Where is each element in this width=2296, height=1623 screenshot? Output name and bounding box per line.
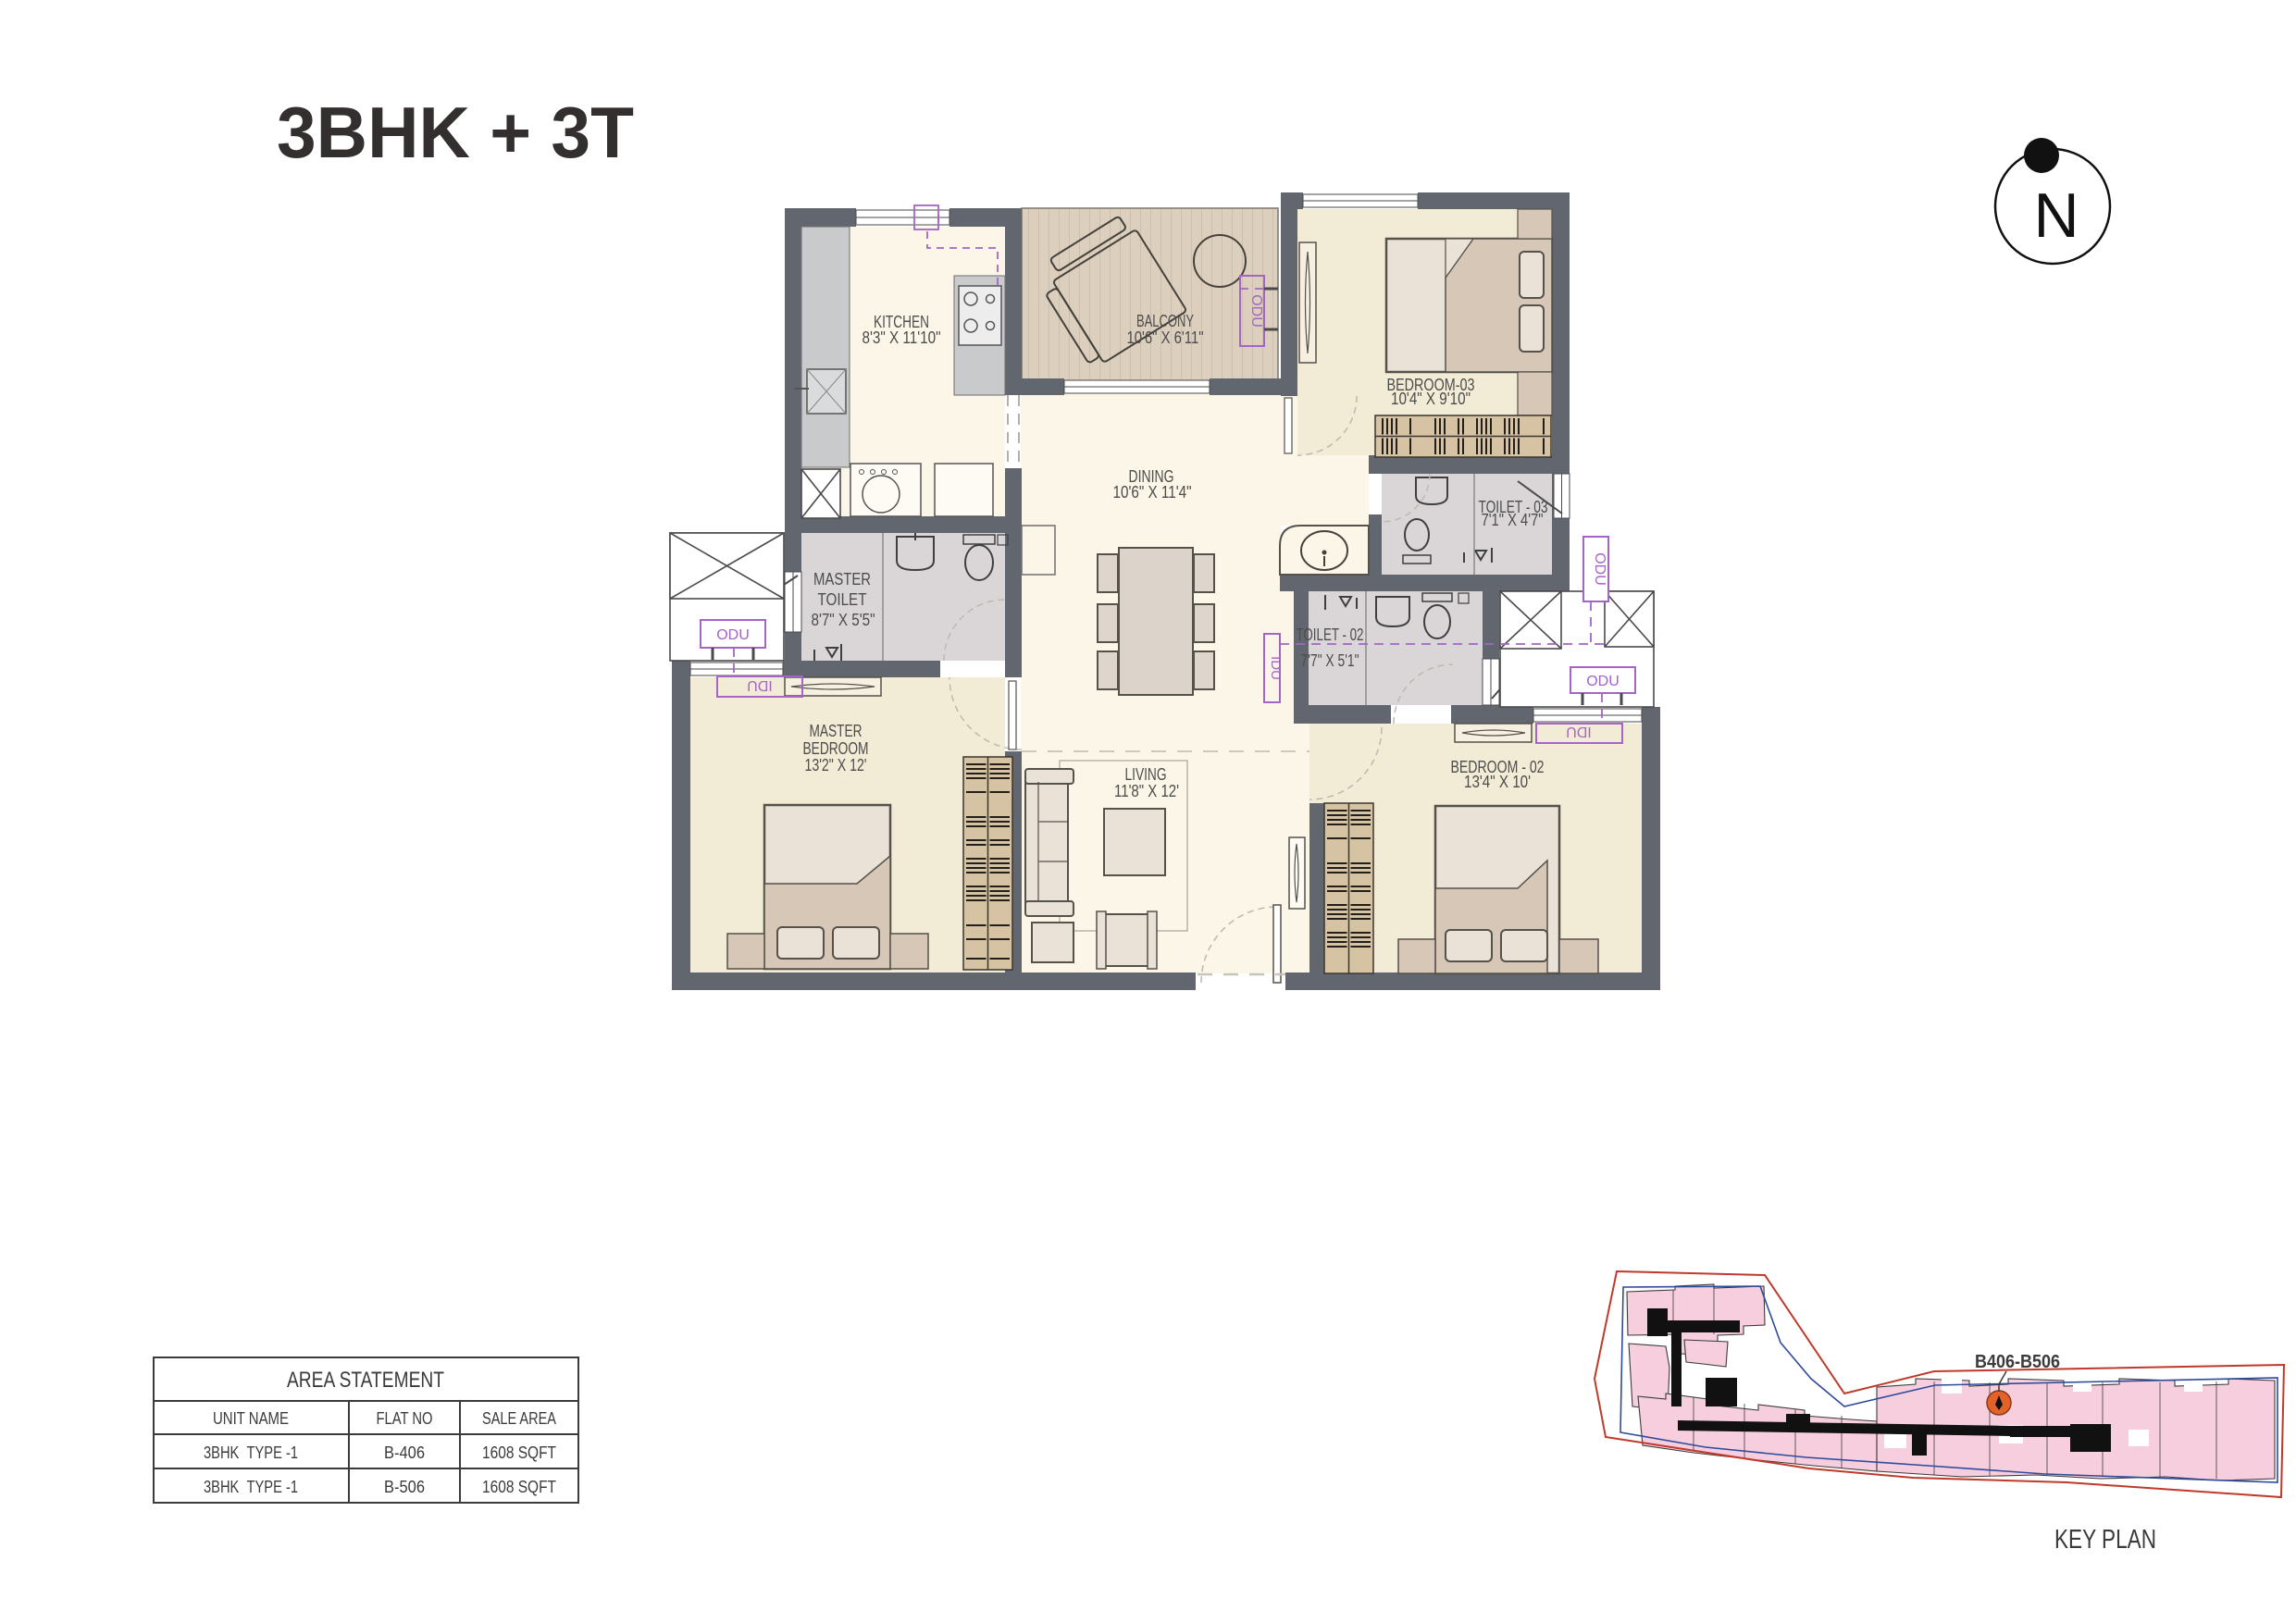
svg-text:1608 SQFT: 1608 SQFT — [482, 1478, 556, 1496]
svg-text:MASTER: MASTER — [813, 570, 871, 588]
svg-text:FLAT NO: FLAT NO — [377, 1409, 433, 1428]
svg-text:B-506: B-506 — [384, 1478, 425, 1496]
svg-text:IDU: IDU — [1566, 724, 1592, 739]
svg-text:TOILET: TOILET — [818, 590, 867, 609]
svg-text:8'3" X 11'10": 8'3" X 11'10" — [863, 328, 941, 347]
svg-text:3BHK TYPE -1: 3BHK TYPE -1 — [204, 1478, 298, 1496]
svg-text:MASTER: MASTER — [810, 722, 863, 740]
svg-text:LIVING: LIVING — [1125, 765, 1167, 784]
svg-text:IDU: IDU — [747, 677, 773, 693]
svg-text:10'4" X 9'10": 10'4" X 9'10" — [1391, 390, 1471, 408]
svg-text:BEDROOM: BEDROOM — [803, 739, 869, 758]
svg-text:ODU: ODU — [1592, 552, 1607, 586]
svg-text:N: N — [2033, 180, 2079, 251]
svg-text:B406-B506: B406-B506 — [1975, 1352, 2060, 1372]
svg-text:B-406: B-406 — [384, 1443, 425, 1462]
svg-text:7'1" X 4'7": 7'1" X 4'7" — [1482, 511, 1544, 529]
svg-text:3BHK + 3T: 3BHK + 3T — [277, 92, 634, 173]
svg-text:11'8" X 12': 11'8" X 12' — [1114, 782, 1179, 800]
svg-text:IDU: IDU — [1268, 656, 1284, 680]
svg-text:13'2" X 12': 13'2" X 12' — [805, 756, 867, 774]
svg-text:ODU: ODU — [716, 627, 750, 643]
svg-text:13'4" X 10': 13'4" X 10' — [1464, 773, 1531, 791]
svg-text:3BHK TYPE -1: 3BHK TYPE -1 — [204, 1443, 298, 1462]
svg-text:ODU: ODU — [1248, 294, 1264, 328]
svg-text:10'6" X 11'4": 10'6" X 11'4" — [1113, 483, 1192, 502]
svg-text:8'7" X 5'5": 8'7" X 5'5" — [812, 611, 875, 629]
svg-text:KEY PLAN: KEY PLAN — [2054, 1525, 2156, 1555]
svg-text:10'6" X 6'11": 10'6" X 6'11" — [1127, 328, 1204, 347]
svg-text:1608 SQFT: 1608 SQFT — [482, 1443, 556, 1462]
svg-text:BALCONY: BALCONY — [1136, 312, 1194, 330]
svg-text:SALE AREA: SALE AREA — [482, 1409, 556, 1428]
svg-text:AREA STATEMENT: AREA STATEMENT — [287, 1368, 444, 1393]
svg-text:ODU: ODU — [1586, 674, 1620, 689]
svg-text:7'7" X 5'1": 7'7" X 5'1" — [1301, 651, 1359, 670]
svg-text:TOILET - 02: TOILET - 02 — [1297, 626, 1364, 644]
svg-text:UNIT NAME: UNIT NAME — [213, 1409, 289, 1428]
